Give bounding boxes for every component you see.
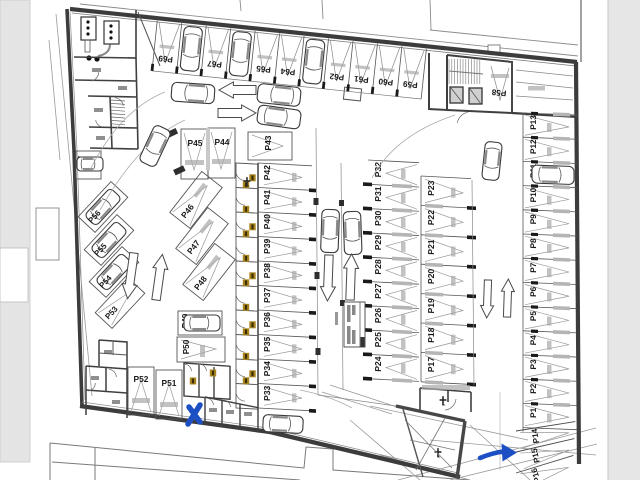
svg-text:P23: P23 xyxy=(426,180,436,196)
svg-text:P13: P13 xyxy=(529,115,538,130)
svg-text:P5: P5 xyxy=(529,310,538,321)
svg-text:P2: P2 xyxy=(529,383,538,394)
svg-text:P19: P19 xyxy=(426,298,436,314)
svg-text:P29: P29 xyxy=(373,235,383,251)
svg-text:P35: P35 xyxy=(262,336,272,352)
svg-text:P7: P7 xyxy=(529,262,538,273)
svg-text:P43: P43 xyxy=(263,135,273,150)
svg-text:P1: P1 xyxy=(529,407,538,418)
svg-text:P32: P32 xyxy=(373,162,383,178)
svg-text:P9: P9 xyxy=(529,214,538,225)
svg-text:P58: P58 xyxy=(491,87,507,98)
svg-text:P25: P25 xyxy=(373,332,383,348)
svg-text:P51: P51 xyxy=(162,378,177,388)
svg-text:P10: P10 xyxy=(529,187,538,202)
svg-text:P17: P17 xyxy=(426,357,436,373)
svg-text:P12: P12 xyxy=(529,139,538,154)
svg-text:P6: P6 xyxy=(529,286,538,297)
svg-text:P36: P36 xyxy=(262,312,272,328)
svg-text:P50: P50 xyxy=(182,339,191,354)
svg-text:P18: P18 xyxy=(426,327,436,343)
svg-text:P3: P3 xyxy=(529,359,538,370)
svg-text:P42: P42 xyxy=(262,165,272,181)
svg-text:P52: P52 xyxy=(134,374,149,384)
svg-text:P44: P44 xyxy=(215,137,230,147)
svg-text:P22: P22 xyxy=(426,210,436,226)
svg-text:P26: P26 xyxy=(373,307,383,323)
svg-text:P34: P34 xyxy=(262,361,272,377)
svg-text:P20: P20 xyxy=(426,268,436,284)
svg-text:P69: P69 xyxy=(157,53,173,64)
svg-text:P45: P45 xyxy=(188,138,203,148)
svg-text:P39: P39 xyxy=(262,238,272,254)
svg-text:P31: P31 xyxy=(373,186,383,202)
svg-text:P4: P4 xyxy=(529,335,538,346)
svg-text:P59: P59 xyxy=(402,79,418,90)
svg-text:P24: P24 xyxy=(373,356,383,372)
svg-text:P30: P30 xyxy=(373,210,383,226)
svg-text:P40: P40 xyxy=(262,214,272,230)
svg-text:P67: P67 xyxy=(206,59,222,70)
svg-text:P60: P60 xyxy=(378,76,394,87)
svg-text:P41: P41 xyxy=(262,189,272,205)
svg-text:P33: P33 xyxy=(262,385,272,401)
svg-text:P8: P8 xyxy=(529,238,538,249)
svg-text:P27: P27 xyxy=(373,283,383,299)
svg-text:P21: P21 xyxy=(426,239,436,255)
svg-text:P37: P37 xyxy=(262,287,272,303)
svg-text:P62: P62 xyxy=(329,71,345,82)
svg-text:P61: P61 xyxy=(353,74,369,85)
svg-text:P65: P65 xyxy=(255,64,271,75)
svg-text:P64: P64 xyxy=(280,66,296,77)
svg-text:P38: P38 xyxy=(262,263,272,279)
svg-text:P28: P28 xyxy=(373,259,383,275)
